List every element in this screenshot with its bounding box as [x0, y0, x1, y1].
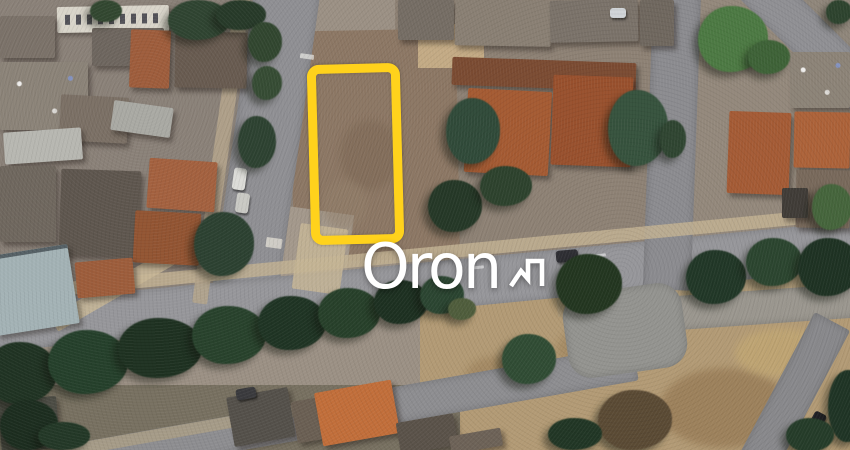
building-roof	[640, 0, 674, 46]
building-roof	[727, 111, 792, 195]
road-marking	[265, 237, 282, 249]
building-roof	[790, 52, 850, 108]
trend-peak-icon	[508, 255, 550, 289]
building-roof	[129, 29, 171, 88]
building-roof	[0, 16, 55, 58]
building-roof	[75, 258, 136, 299]
tree	[826, 0, 850, 24]
building-roof	[782, 188, 808, 218]
tree	[786, 418, 834, 450]
tree	[258, 296, 326, 350]
satellite-map: Oron	[0, 0, 850, 450]
building-roof	[550, 0, 639, 43]
lot-boundary-highlight	[307, 63, 405, 245]
building-roof	[133, 210, 202, 265]
tree	[812, 184, 850, 230]
building-roof	[0, 244, 80, 336]
building-roof	[3, 127, 83, 164]
building-roof	[175, 31, 248, 88]
building-roof	[146, 158, 217, 213]
tree	[118, 318, 202, 378]
aerial-imagery	[0, 0, 850, 450]
building-roof	[455, 0, 552, 47]
building-roof	[398, 0, 454, 40]
car	[235, 192, 251, 214]
tree	[192, 306, 266, 364]
building-roof	[794, 112, 850, 169]
building-roof	[0, 166, 56, 242]
watermark-text: Oron	[361, 236, 499, 298]
car	[610, 8, 626, 18]
building-roof	[59, 169, 142, 258]
watermark: Oron	[361, 236, 550, 298]
tree	[798, 238, 850, 296]
